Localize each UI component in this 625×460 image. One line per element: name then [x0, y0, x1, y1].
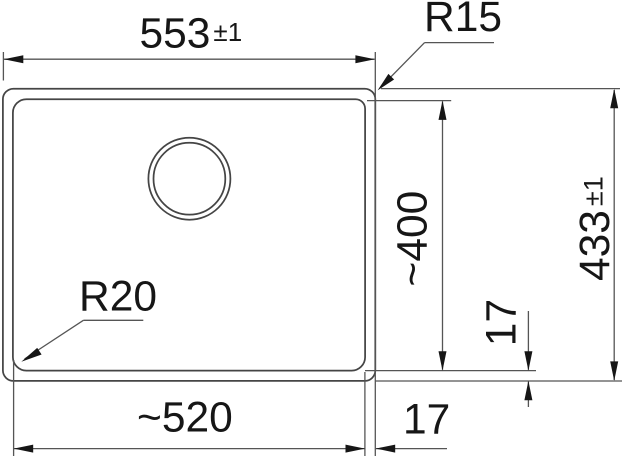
- svg-text:R15: R15: [424, 0, 502, 41]
- svg-text:17: 17: [479, 299, 526, 346]
- svg-text:~400: ~400: [389, 191, 436, 287]
- svg-text:R20: R20: [79, 273, 157, 320]
- svg-text:~520: ~520: [137, 395, 233, 442]
- svg-text:17: 17: [403, 397, 450, 444]
